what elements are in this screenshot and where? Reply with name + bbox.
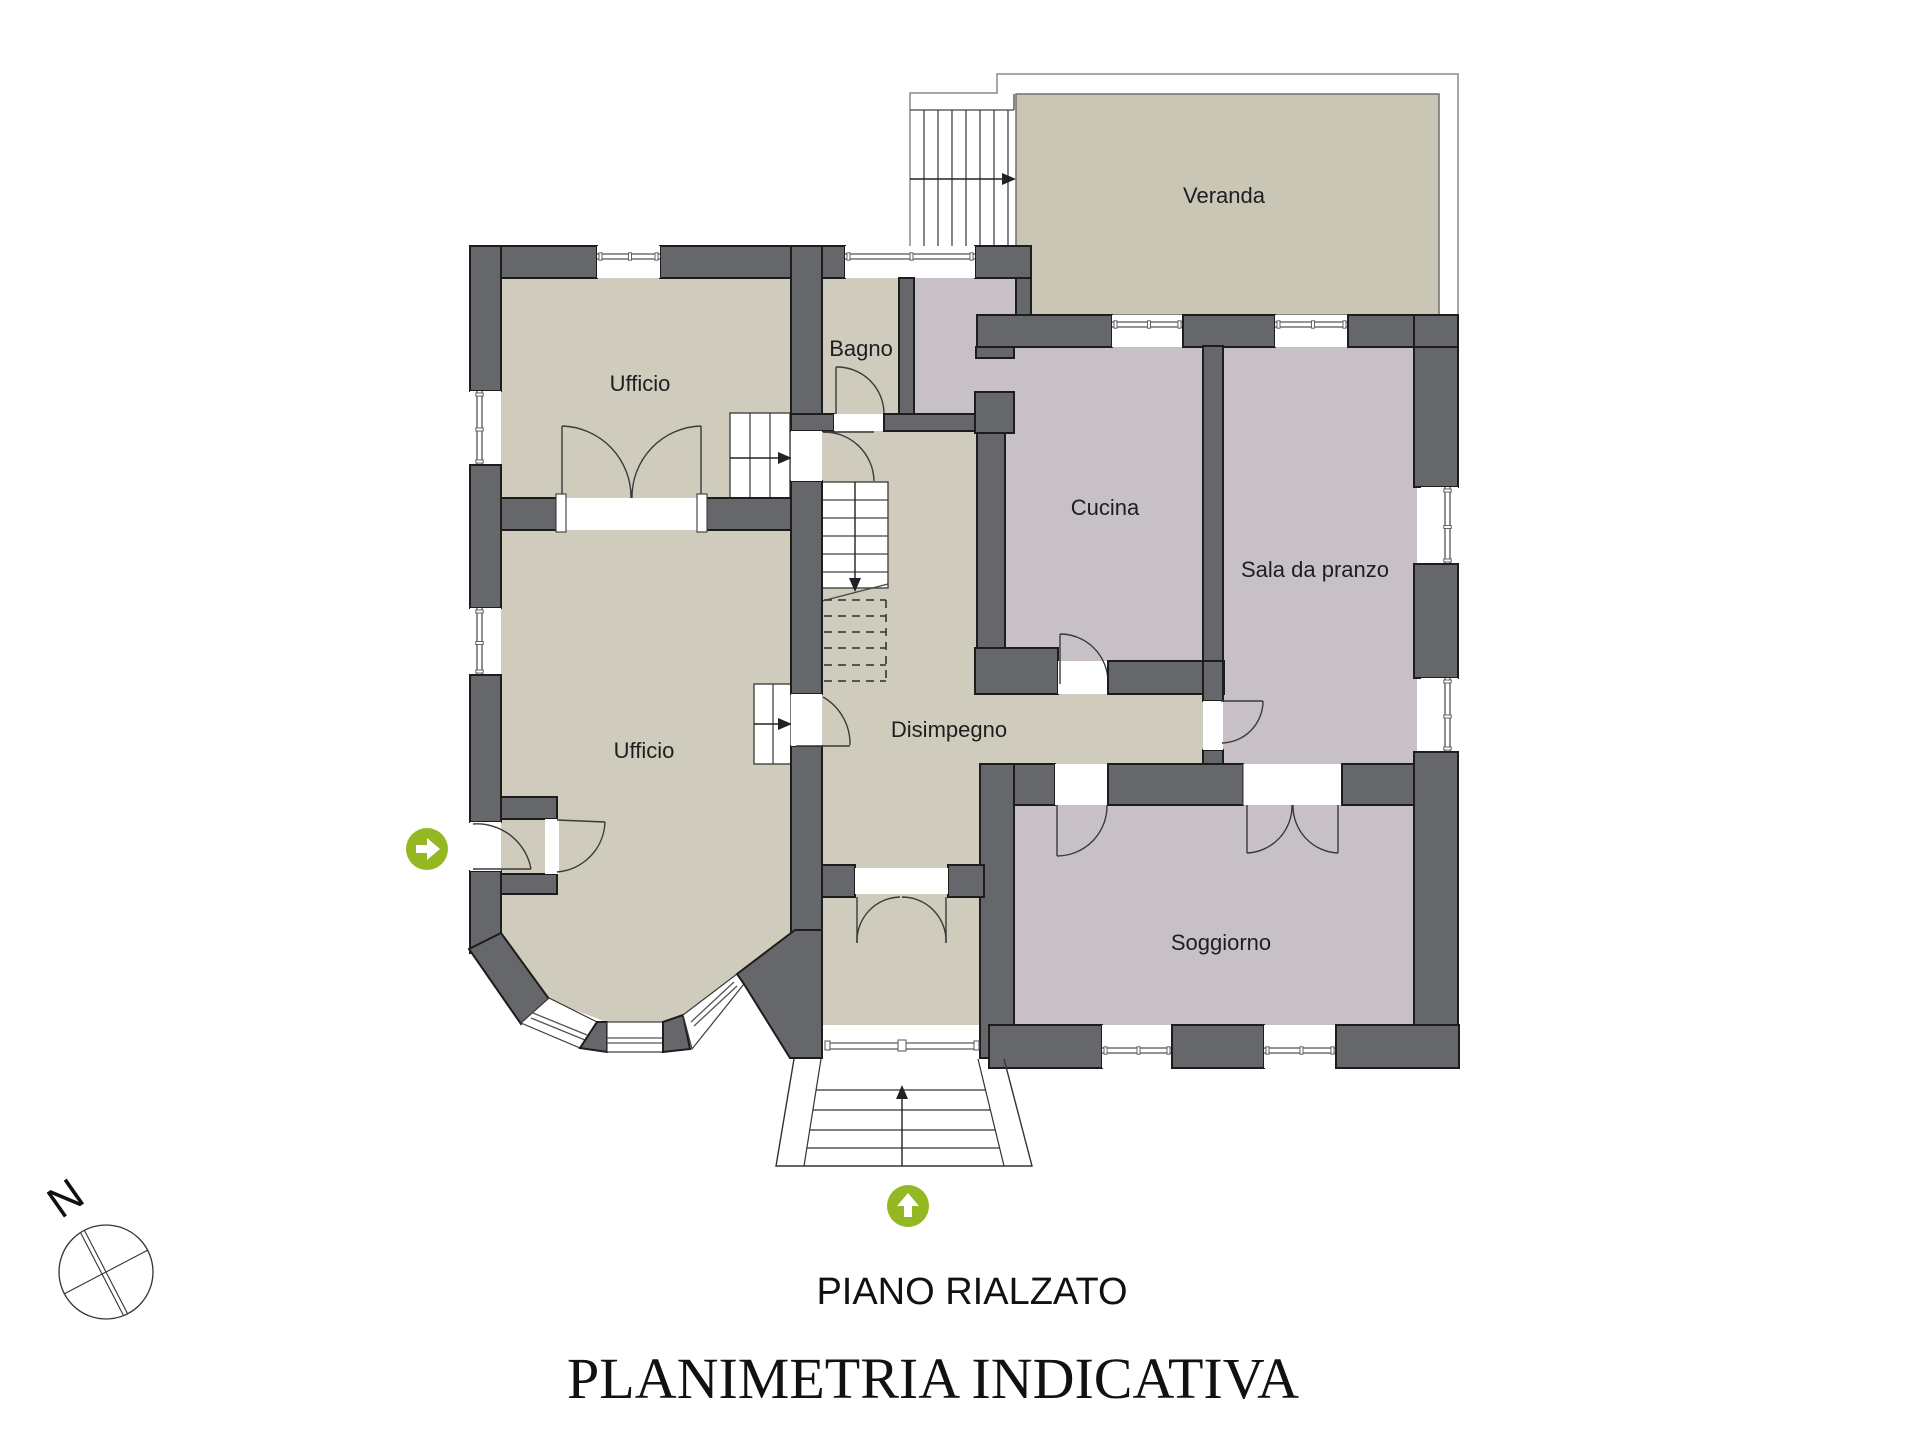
svg-text:PLANIMETRIA INDICATIVA: PLANIMETRIA INDICATIVA xyxy=(567,1346,1299,1411)
svg-text:Sala da pranzo: Sala da pranzo xyxy=(1241,557,1389,582)
svg-text:Ufficio: Ufficio xyxy=(614,738,675,763)
svg-text:Bagno: Bagno xyxy=(829,336,893,361)
svg-text:Disimpegno: Disimpegno xyxy=(891,717,1007,742)
svg-text:Veranda: Veranda xyxy=(1183,183,1266,208)
svg-text:PIANO RIALZATO: PIANO RIALZATO xyxy=(816,1271,1127,1313)
svg-text:Ufficio: Ufficio xyxy=(610,371,671,396)
svg-text:Soggiorno: Soggiorno xyxy=(1171,930,1271,955)
svg-text:Cucina: Cucina xyxy=(1071,495,1140,520)
